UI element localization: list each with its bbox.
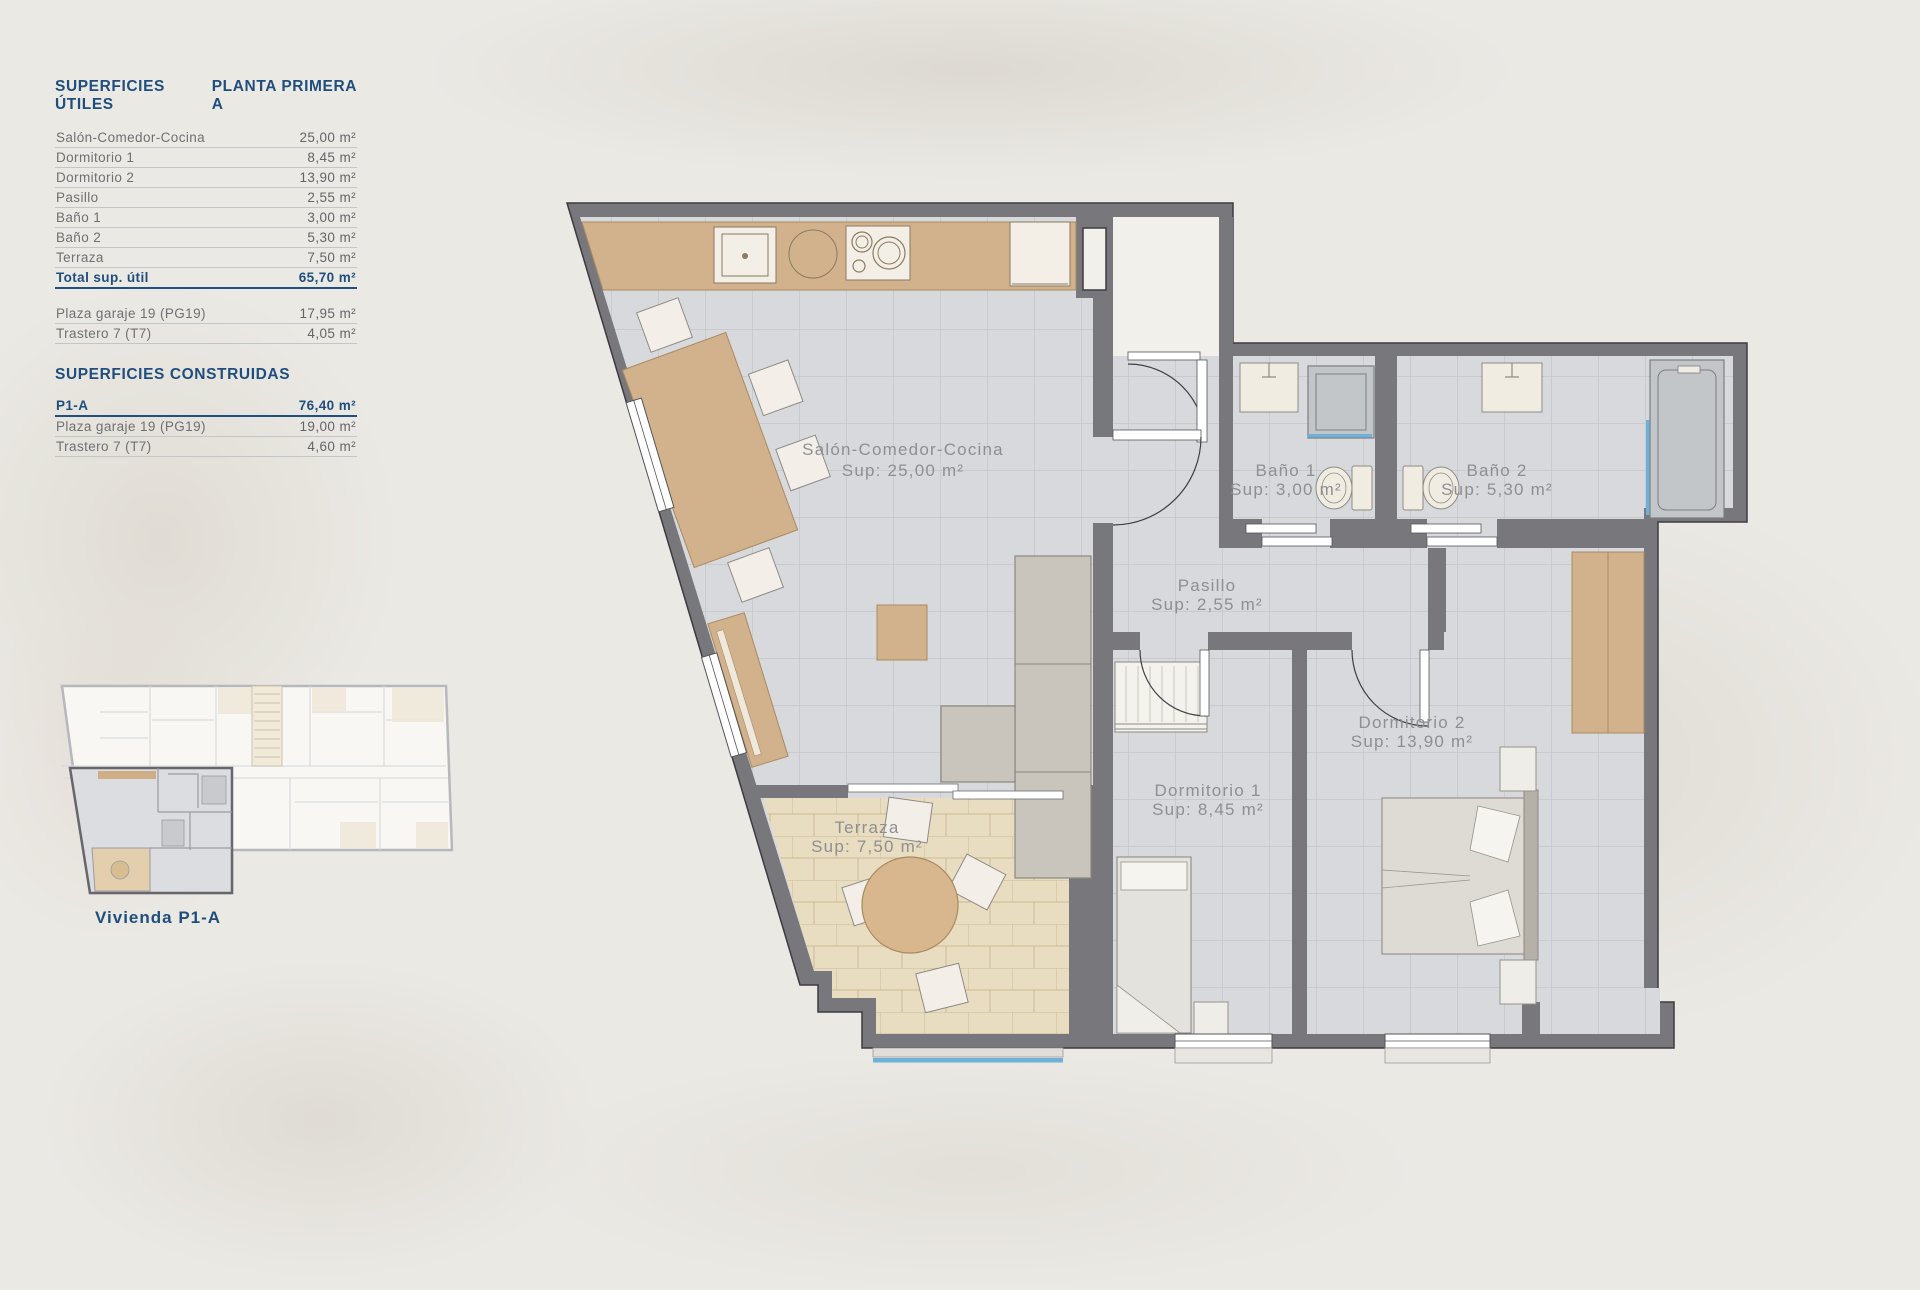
kitchen-basin <box>789 230 837 278</box>
closet <box>1115 662 1207 732</box>
nightstand <box>1500 747 1536 791</box>
room-label-pasillo: Pasillo <box>1178 576 1236 595</box>
terrace-glass-rail <box>873 1058 1063 1063</box>
bath-glass <box>1646 420 1650 515</box>
room-label-bano2: Baño 2 <box>1466 461 1527 480</box>
terrace-sill <box>873 1048 1063 1057</box>
shower-glass <box>1308 434 1372 438</box>
room-label-terraza: Terraza <box>834 818 899 837</box>
room-label-dorm1: Dormitorio 1 <box>1155 781 1262 800</box>
single-bed <box>1117 857 1191 1033</box>
room-sup-dorm2: Sup: 13,90 m² <box>1351 732 1473 751</box>
fridge <box>1010 222 1070 286</box>
entry-vestibule <box>1113 217 1219 356</box>
nightstand <box>1500 960 1536 1004</box>
nightstand <box>1194 1002 1228 1036</box>
room-sup-salon: Sup: 25,00 m² <box>842 461 964 480</box>
double-bed <box>1382 790 1538 960</box>
duct-inner <box>1083 228 1106 290</box>
room-label-salon: Salón-Comedor-Cocina <box>802 440 1004 459</box>
room-sup-dorm1: Sup: 8,45 m² <box>1152 800 1264 819</box>
room-sup-pasillo: Sup: 2,55 m² <box>1151 595 1263 614</box>
coffee-table <box>877 605 927 660</box>
room-sup-terraza: Sup: 7,50 m² <box>811 837 923 856</box>
floor-plan: Salón-Comedor-Cocina Sup: 25,00 m² Baño … <box>0 0 1920 1280</box>
terrace-table <box>862 857 958 953</box>
room-sup-bano1: Sup: 3,00 m² <box>1230 480 1342 499</box>
room-sup-bano2: Sup: 5,30 m² <box>1441 480 1553 499</box>
cooktop <box>846 226 910 280</box>
shower <box>1308 366 1374 438</box>
wardrobe <box>1572 552 1644 733</box>
room-label-dorm2: Dormitorio 2 <box>1359 713 1466 732</box>
kitchen-counter <box>582 222 1076 290</box>
room-label-bano1: Baño 1 <box>1255 461 1316 480</box>
bathtub <box>1650 360 1724 518</box>
